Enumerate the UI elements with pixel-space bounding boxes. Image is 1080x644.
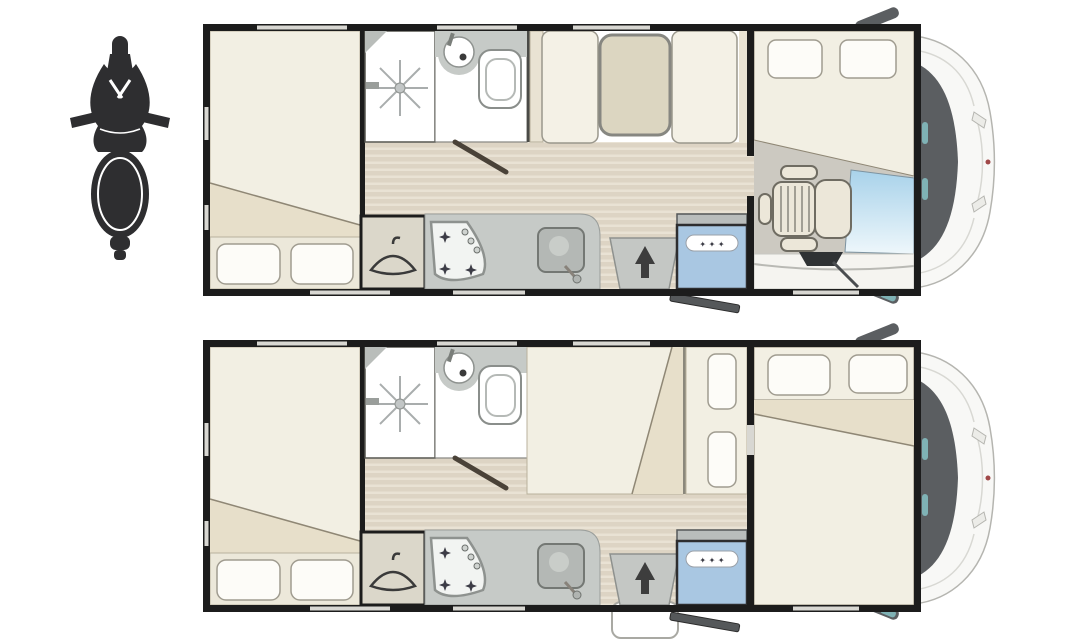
- windshield-glint: [922, 122, 928, 144]
- dinette-table: [600, 35, 670, 135]
- entry-door-open: [670, 293, 740, 313]
- hob-knob: [462, 545, 468, 551]
- hob-knob: [468, 238, 474, 244]
- fridge: ✦ ✦ ✦: [677, 541, 747, 605]
- pillow: [291, 244, 353, 284]
- bathroom: [435, 347, 527, 458]
- rear-bedroom: [210, 31, 360, 289]
- headrest: [759, 194, 771, 224]
- pillow: [768, 40, 822, 78]
- entry-door-open: [670, 612, 740, 632]
- cab-passage: [747, 156, 754, 196]
- converted-dinette-bed: [527, 347, 747, 494]
- badge-dot: [986, 476, 991, 481]
- vehicle-front-bottom: [908, 344, 1008, 612]
- bench-seat: [672, 31, 737, 143]
- shower-mixer: [366, 82, 379, 89]
- rear-bedroom: [210, 347, 360, 605]
- cabinet: [530, 31, 543, 142]
- cab-bulkhead: [747, 196, 754, 289]
- fridge-stars: ✦ ✦ ✦: [699, 240, 724, 249]
- bench-seat: [542, 31, 598, 143]
- dinette: [542, 31, 747, 143]
- drain: [460, 370, 467, 377]
- armrest: [781, 166, 817, 179]
- kitchen: [425, 530, 600, 605]
- bulkhead-gap: [747, 425, 754, 455]
- shower-room: [365, 31, 435, 142]
- pillow: [840, 40, 896, 78]
- windshield: [845, 170, 914, 254]
- scooter-seat: [91, 150, 149, 238]
- pillow: [768, 355, 830, 395]
- badge-dot: [986, 160, 991, 165]
- kitchen: [425, 214, 600, 289]
- cab-bulkhead: [747, 455, 754, 605]
- pillow: [708, 432, 736, 487]
- wardrobe: [361, 532, 425, 605]
- vehicle-front-top: [908, 28, 1008, 296]
- hob-knob: [462, 229, 468, 235]
- scooter-tail: [114, 250, 126, 260]
- cab-area: [754, 31, 914, 289]
- floorplan-day: ✦ ✦ ✦: [203, 24, 921, 296]
- armrest: [781, 238, 817, 251]
- pillow: [217, 244, 280, 284]
- hob-knob: [468, 554, 474, 560]
- floorplan-night: ✦ ✦ ✦: [203, 340, 921, 612]
- fridge-vent: [677, 530, 747, 541]
- cab-bulkhead: [747, 347, 754, 425]
- floorplan-canvas: ✦ ✦ ✦: [0, 0, 1080, 644]
- windshield-glint: [922, 438, 928, 460]
- seat-cushion: [815, 180, 851, 238]
- hob-knob: [474, 563, 480, 569]
- cab-bulkhead: [747, 31, 754, 156]
- scooter-icon: [70, 36, 170, 264]
- pillow: [708, 354, 736, 409]
- hob-knob: [474, 247, 480, 253]
- scooter-rear: [110, 236, 130, 250]
- fridge: ✦ ✦ ✦: [677, 225, 747, 289]
- fridge-stars: ✦ ✦ ✦: [699, 556, 724, 565]
- pillow: [291, 560, 353, 600]
- drain: [460, 54, 467, 61]
- windshield-glint: [922, 494, 928, 516]
- shower-room: [365, 347, 435, 458]
- pillow: [217, 560, 280, 600]
- windshield-glint: [922, 178, 928, 200]
- bathroom: [435, 31, 527, 142]
- pillow: [849, 355, 907, 393]
- fridge-vent: [677, 214, 747, 225]
- wardrobe: [361, 216, 425, 289]
- dropdown-front-bed: [754, 347, 914, 605]
- cabinet: [739, 31, 747, 143]
- shower-mixer: [366, 398, 379, 405]
